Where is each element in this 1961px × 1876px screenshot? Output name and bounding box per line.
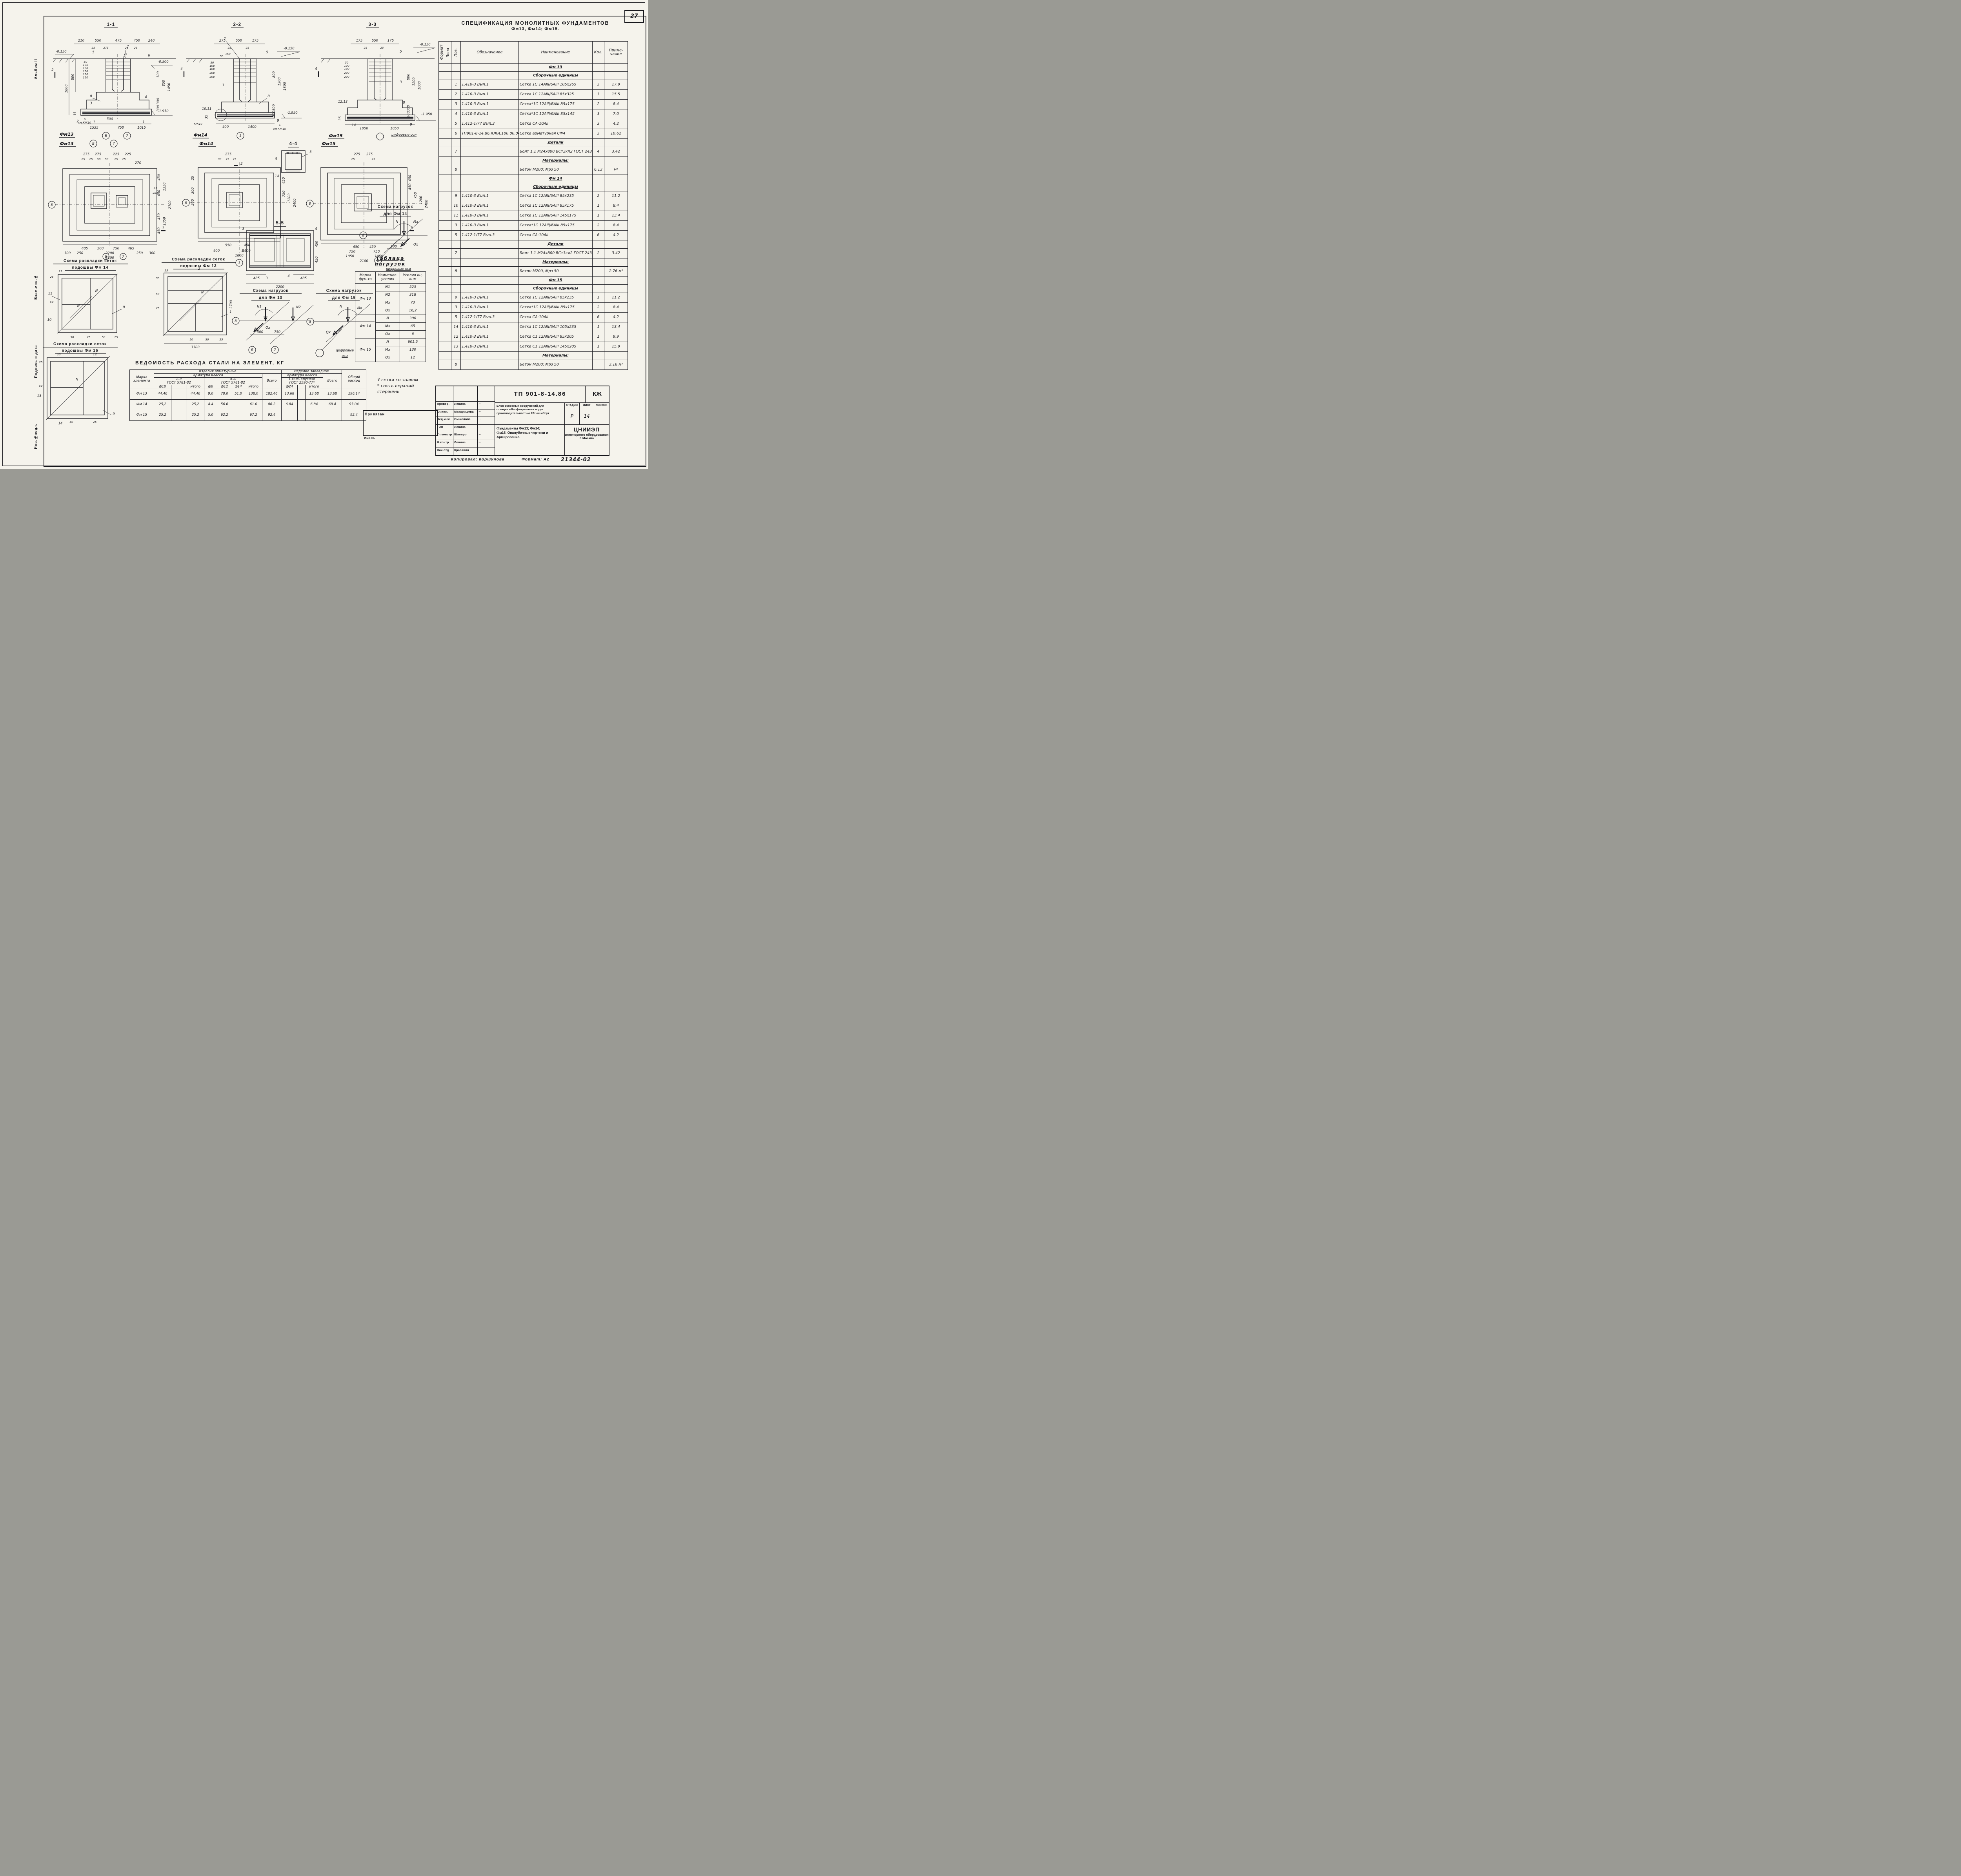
callout: 3: [266, 277, 267, 280]
spec-group-row: Сборочные единицы: [439, 183, 628, 191]
axes-note: оси: [342, 354, 348, 358]
signature-row: Ст.инж.Макарищева~: [436, 409, 495, 417]
dim-label: для Фм 13: [259, 296, 282, 300]
spec-item-row: 21.410-3 Вып.1Сетка 1С 12АIII/6АIII 85x3…: [439, 90, 628, 100]
dim-label: 25: [351, 158, 355, 161]
load-mark: Фм 13: [355, 284, 376, 315]
spec-group-row: Фм 15: [439, 277, 628, 285]
steel-mark: Фм 13: [130, 389, 154, 399]
signature-row: Вед.инжСмыслова~: [436, 417, 495, 425]
load-mark: Фм 15: [355, 338, 376, 362]
dim-label: N: [76, 378, 78, 382]
dim-label: N: [201, 291, 204, 295]
dim-label: 400: [213, 249, 220, 253]
dim-label: 1200: [278, 77, 282, 86]
dim-label: 175: [387, 39, 394, 43]
dim-label: Qx: [266, 326, 271, 330]
dim-label: 25: [156, 307, 160, 310]
dim-label: 750: [274, 330, 280, 334]
axes-note: цифровые оси: [391, 133, 417, 137]
dim-label: 500: [107, 117, 113, 121]
spec-group-row: Детали: [439, 240, 628, 249]
dim-label: 1015: [137, 126, 146, 130]
dim-label: 200: [209, 75, 215, 78]
dim-label: Схема раскладки сеток: [64, 259, 117, 263]
callout: 12: [93, 353, 97, 357]
dim-label: 275: [103, 46, 109, 49]
steel-table: Марка элемента Изделия арматурные Издели…: [129, 369, 366, 421]
dim-label: 50: [70, 420, 73, 424]
load-scheme-fm13: Схема нагрузок для Фм 13 8 N1 N2 Qx 500 …: [232, 289, 313, 353]
dim-label: 150: [83, 76, 88, 79]
dim-label: 150: [83, 73, 88, 76]
dim-label: 750: [118, 126, 124, 130]
title-block: Провер.Левина~Ст.инж.Макарищева~Вед.инжС…: [435, 386, 609, 456]
signature-row: ГИПЛевина~: [436, 425, 495, 433]
dim-label: 25: [220, 338, 223, 341]
spec-group-row: Материалы:: [439, 258, 628, 267]
loads-table: Марка фун-та Наименов. усилия Усилия кн,…: [355, 271, 426, 362]
spec-group-row: Сборочные единицы: [439, 285, 628, 293]
dim-label: 250: [77, 251, 83, 255]
callout: 12,13: [338, 100, 347, 104]
dim-label: 25: [165, 269, 168, 272]
dim-label: 2700: [229, 300, 233, 309]
spec-item-row: 11.410-3 Вып.1Сетка 1С 14АIII/6АIII 105x…: [439, 80, 628, 90]
section-1-1: 1-1 210 550 475 450 240 25 275 25 25 150…: [51, 22, 176, 139]
dim-label: 465: [128, 247, 134, 251]
callout: 3: [90, 102, 92, 106]
format-label: Формат: А2: [522, 457, 549, 462]
steel-mark: Фм 14: [130, 399, 154, 410]
spec-item-row: 41.410-3 Вып.1Сетка*1С 12АIII/6АIII 85x1…: [439, 109, 628, 119]
spec-group-row: Материалы:: [439, 157, 628, 165]
dim-label: см.КЖ10: [78, 121, 91, 124]
dim-label: 850: [162, 80, 166, 86]
dim-label: 25: [50, 275, 54, 278]
callout: 3: [400, 80, 402, 84]
dim-label: Б: [84, 118, 86, 121]
dim-label: 8: [362, 234, 364, 238]
callout: 11: [48, 292, 53, 296]
dim-label: 270: [135, 161, 141, 165]
spec-item-row: 31.410-3 Вып.1Сетка*1С 12АIII/6АIII 85x1…: [439, 303, 628, 313]
dim-label: 5-5: [276, 221, 284, 226]
spec-item-row: 51.412-1/77 Вып.3Сетка СА-10АII34.2: [439, 119, 628, 129]
dim-label: 2700: [168, 200, 172, 209]
section-title: 1-1: [107, 22, 115, 27]
dim-label: 25: [82, 158, 85, 161]
spec-group-row: Сборочные единицы: [439, 72, 628, 80]
callout: 1: [93, 120, 95, 124]
dim-label: 1050: [346, 255, 354, 258]
dim-label: 50: [190, 338, 193, 341]
dim-label: 25: [92, 46, 95, 49]
dim-label: 8: [235, 319, 237, 323]
dim-label: 500: [97, 247, 104, 251]
drawing-sheet: 27 Альбом II Взам.инв.№ Подпись и дата И…: [0, 0, 648, 469]
dim-label: 275: [366, 153, 373, 156]
callout: 7: [224, 37, 226, 41]
dim-label: 50: [97, 158, 101, 161]
dim-label: 275: [354, 153, 360, 156]
callout: 1: [142, 120, 144, 124]
steel-row: Фм 1525,225,25,062,267,292.492.4: [130, 410, 366, 420]
dim-label: 550: [236, 39, 242, 43]
dim-label: Б: [105, 134, 107, 138]
dim-label: 450: [408, 175, 412, 181]
dim-label: 150: [225, 53, 231, 56]
callout: 2: [198, 267, 200, 271]
spec-group-row: Материалы:: [439, 352, 628, 360]
dim-label: 800: [71, 74, 75, 80]
scheme-mesh-fm15: Схема раскладки сеток подошвы Фм 15 N 12…: [37, 342, 118, 426]
dim-label: -0.150: [420, 43, 430, 47]
dim-label: 450: [353, 245, 359, 249]
spec-group-row: Фм 14: [439, 175, 628, 183]
copied-by: Копировал: Коршунова: [451, 457, 504, 462]
dim-label: -0.150: [56, 50, 66, 54]
callout: 8: [403, 101, 405, 105]
cut-mark: 4: [315, 67, 317, 71]
dim-label: -1.950: [421, 113, 432, 116]
dim-label: 4-4: [289, 142, 297, 146]
dim-label: 100: [344, 64, 349, 67]
dim-label: 25: [87, 336, 91, 339]
plan-fm15: Фм15 275 275 25 25 8 450 450 750 1200 24…: [306, 141, 429, 263]
dim-label: 25: [233, 158, 236, 161]
callout: 3: [222, 84, 224, 87]
callout: 8: [90, 95, 92, 98]
dim-label: 50: [156, 277, 160, 280]
load-mark: Фм 14: [355, 315, 376, 338]
dim-label: 450: [315, 257, 319, 263]
dim-label: N: [340, 305, 342, 309]
spec-item-row: 7Болт 1.1 М24x800 ВСт3кл2 ГОСТ 24379.1-8…: [439, 249, 628, 258]
dim-label: Схема раскладки сеток: [53, 342, 107, 346]
signature-row: Провер.Левина~: [436, 402, 495, 409]
dim-label: 25: [93, 420, 97, 424]
dim-label: 7: [274, 348, 276, 352]
sheet-number: 14: [580, 409, 595, 424]
signature-row: Нач.отдКрасавин~: [436, 448, 495, 455]
dim-label: 8: [309, 320, 311, 324]
callout: 6: [148, 54, 150, 58]
dim-label: 25: [226, 158, 229, 161]
dim-label: 550: [225, 244, 231, 247]
axes-note: цифровые: [336, 349, 354, 353]
dim-label: 750: [373, 250, 380, 254]
dim-label: 300: [407, 111, 411, 118]
dim-label: 8: [309, 202, 311, 206]
dim-label: Схема нагрузок: [253, 289, 289, 293]
dim-label: для Фм 15: [332, 296, 356, 300]
callout: 4: [287, 274, 289, 278]
callout: 8: [267, 95, 270, 98]
dim-label: 175: [356, 39, 362, 43]
dim-label: 1400: [248, 125, 256, 129]
dim-label: 25: [122, 158, 126, 161]
dim-label: 200: [344, 71, 349, 75]
dim-label: 35: [73, 112, 77, 116]
dim-label: 450: [408, 184, 412, 190]
dim-label: 240: [148, 39, 155, 43]
spec-group-row: Детали: [439, 139, 628, 147]
dim-label: 300: [407, 105, 411, 111]
dim-label: 400: [222, 125, 229, 129]
callout: 5: [275, 157, 277, 161]
star-note: У сетки со знаком * снять верхний стерже…: [377, 377, 440, 395]
dim-label: 1200: [419, 196, 423, 204]
doc-mark: КЖ: [585, 386, 609, 402]
spec-item-row: 8Бетон М200; Мрз 503.16 м³: [439, 360, 628, 370]
dim-label: 25: [228, 46, 231, 49]
dim-label: 450: [134, 39, 140, 43]
scheme-mesh-fm14: 6 7 Схема раскладки сеток подошвы Фм 14 …: [47, 253, 128, 339]
foundation-mark: Фм14: [193, 133, 207, 138]
scheme-mesh-fm13: Схема раскладки сеток подошвы Фм 13 N 2 …: [156, 257, 236, 349]
dim-label: 50: [211, 61, 214, 64]
dim-label: 225: [113, 153, 119, 156]
dim-label: 50: [105, 158, 109, 161]
inv-number-label: Инв.№: [364, 436, 375, 440]
dim-label: 1400: [242, 249, 251, 253]
load-row: Фм 13N1523: [355, 284, 426, 291]
dim-label: N2: [296, 306, 301, 309]
dim-label: 25: [191, 176, 195, 180]
dim-label: 25: [134, 46, 138, 49]
dim-label: 200: [344, 75, 349, 78]
dim-label: 25: [154, 187, 157, 190]
spec-item-row: 131.410-3 Вып.1Сетка С1 12АIII/6АIII 145…: [439, 342, 628, 352]
dim-label: 175: [252, 39, 258, 43]
dim-label: 750: [113, 247, 119, 251]
dim-label: 275: [95, 153, 101, 156]
callout: 13: [37, 394, 42, 398]
dim-label: 1450: [167, 83, 171, 91]
signature-row: Н.контрЛевина~: [436, 440, 495, 448]
dim-label: 25: [115, 336, 118, 339]
foundation-mark: Фм15: [322, 141, 336, 146]
dim-label: 35: [205, 115, 209, 119]
dim-label: 1: [239, 134, 241, 138]
dim-label: 100: [209, 64, 215, 67]
spec-item-row: 31.410-3 Вып.1Сетка*1С 12АIII/6АIII 85x1…: [439, 100, 628, 109]
foundation-mark: Фм13: [60, 132, 74, 137]
dim-label: 550: [95, 39, 101, 43]
stage-value: Р: [565, 409, 580, 424]
dim-label: 475: [115, 39, 122, 43]
dim-label: 225: [125, 153, 131, 156]
dim-label: Б: [251, 348, 253, 352]
loads-title: Таблица нагрузок: [355, 256, 426, 267]
dim-label: 1535: [90, 126, 98, 130]
dim-label: 450: [157, 227, 161, 234]
dim-label: 500: [257, 330, 263, 334]
binding-box: Привязан: [363, 410, 438, 436]
foundation-mark: Фм15: [329, 133, 343, 138]
dim-label: 485: [253, 277, 260, 280]
steel-row: Фм 1344.4644.469.078.051.0138.0182.4613.…: [130, 389, 366, 399]
callout: 4: [315, 227, 317, 231]
dim-label: 450: [157, 174, 161, 180]
dim-label: 2-2: [233, 22, 241, 27]
callout: 5: [266, 51, 268, 55]
cut-mark: 2: [240, 162, 242, 166]
dim-label: 300: [156, 98, 160, 104]
dim-label: 300: [149, 251, 155, 255]
callout: 10: [47, 318, 52, 322]
steel-mark: Фм 15: [130, 410, 154, 420]
dim-label: 1800: [65, 84, 69, 93]
dim-label: 300: [64, 251, 71, 255]
callout: 14: [275, 175, 279, 178]
dim-label: Qx: [326, 331, 331, 335]
dim-label: 100: [83, 64, 88, 67]
section-2-2: 2-2 275 550 175 25 25 -0.150 150 50 50 1…: [180, 22, 302, 139]
callout: 9: [123, 306, 125, 309]
cut-mark: 4: [180, 67, 182, 71]
dim-label: 35: [338, 116, 342, 121]
dim-label: подошвы Фм 14: [72, 266, 108, 270]
dim-label: 500: [156, 71, 160, 78]
plan-fm13: Б 7 Фм13 275 275 225 225 25 25 50 50 25 …: [48, 140, 172, 260]
dim-label: 225: [153, 191, 158, 195]
spec-item-row: 6ТП901-8-14.86.КЖИ.100.00.04Сетка армату…: [439, 129, 628, 139]
dim-label: 25: [380, 46, 384, 49]
load-row: Фм 14N300: [355, 315, 426, 323]
spec-item-row: 8Бетон М200, Мрз 502.76 м³: [439, 267, 628, 277]
organization: ЦНИИЭП инженерного оборудования г. Москв…: [565, 425, 609, 455]
dim-label: N: [396, 220, 398, 224]
dim-label: N1: [257, 305, 262, 309]
dim-label: 800: [407, 74, 411, 80]
dim-label: 750: [414, 192, 418, 198]
dim-label: 1350: [163, 217, 167, 226]
spec-item-row: 7Болт 1.1 М24x800 ВСт3кп2 ГОСТ 24379.1-8…: [439, 147, 628, 157]
doc-code: ТП 901-8-14.86: [495, 386, 585, 402]
dim-label: 100: [83, 67, 88, 70]
foundation-mark: Фм14: [199, 141, 213, 146]
dim-label: Б: [92, 142, 95, 146]
dim-label: КЖ10: [194, 122, 202, 126]
dim-label: 300: [272, 111, 276, 117]
sheet-name: Фундаменты Фм13; Фм14; Фм15. Опалубочные…: [495, 425, 565, 455]
dim-label: 25: [89, 158, 93, 161]
dim-label: см.КЖ10: [273, 127, 286, 131]
spec-item-row: 31.410-3 Вып.1Сетка*1С 12АIII/6АIII 85x1…: [439, 221, 628, 231]
dim-label: 450: [282, 177, 286, 184]
callout: 3: [242, 227, 244, 231]
project-name: Блок основных сооружений для станции обе…: [495, 403, 565, 424]
callout: 5: [92, 51, 94, 55]
dim-label: -1.950: [287, 111, 297, 115]
cut-mark: 5: [51, 68, 53, 72]
dim-label: 25: [364, 46, 367, 49]
dim-label: 300: [191, 187, 195, 194]
dim-label: 1350: [163, 182, 167, 191]
dim-label: 25: [57, 353, 61, 356]
section-3-3: 3-3 175 550 175 25 25 -0.150 50 100 100 …: [315, 22, 436, 140]
spec-title: СПЕЦИФИКАЦИЯ МОНОЛИТНЫХ ФУНДАМЕНТОВ Фм13…: [443, 20, 628, 31]
dim-label: 1800: [283, 82, 287, 91]
dim-label: 1200: [287, 193, 291, 202]
dim-label: -0.150: [284, 47, 294, 51]
dim-label: 50: [50, 300, 54, 304]
spec-item-row: 121.410-3 Вып.1Сетка С1 12АIII/6АIII 85x…: [439, 332, 628, 342]
dim-label: 8: [51, 203, 53, 207]
dim-label: 450: [244, 244, 250, 247]
signature-row: Гл.констрШапиро~: [436, 432, 495, 440]
callout: 1: [229, 310, 231, 314]
dim-label: 200: [191, 199, 195, 206]
steel-title: ВЕДОМОСТЬ РАСХОДА СТАЛИ НА ЭЛЕМЕНТ, КГ: [135, 360, 284, 366]
foundation-mark: Фм13: [60, 141, 74, 146]
dim-label: 275: [83, 153, 89, 156]
dim-label: 2400: [293, 198, 297, 207]
dim-label: 1800: [418, 81, 422, 90]
plan-fm14: Фм14 275 90 25 25 8 25 300 200 450 750 1…: [182, 141, 297, 266]
dim-label: 1800: [235, 254, 244, 258]
spec-table: Формат Зона Поз. Обозначение Наименовани…: [438, 41, 628, 370]
dim-label: 25: [115, 158, 118, 161]
dim-label: 8: [185, 201, 187, 205]
dim-label: 7: [122, 255, 124, 259]
callout: 10,11: [202, 107, 211, 111]
dim-label: 25: [372, 158, 375, 161]
dim-label: 750: [282, 191, 286, 197]
title-block-signatures: Провер.Левина~Ст.инж.Макарищева~Вед.инжС…: [436, 386, 495, 455]
dim-label: 3-3: [368, 22, 377, 27]
dim-label: Схема раскладки сеток: [172, 257, 225, 262]
dim-label: Qx: [413, 243, 418, 247]
dim-label: 485: [82, 247, 88, 251]
dim-label: Схема нагрузок: [378, 205, 413, 209]
cut-mark: 1: [162, 226, 164, 230]
spec-item-row: 141.410-3 Вып.1Сетка 1С 12АIII/6АIII 105…: [439, 322, 628, 332]
load-row: Фм 15N601.5: [355, 338, 426, 346]
sheets-total: [594, 409, 609, 424]
dim-label: 50: [345, 61, 349, 64]
dim-label: 150: [123, 52, 128, 58]
spec-item-row: 91.410-3 Вып.1Сетка 1С 12АIII/6АIII 85x2…: [439, 293, 628, 303]
spec-group-row: Фм 13: [439, 64, 628, 72]
dim-label: N: [77, 304, 80, 308]
dim-label: 50: [39, 384, 43, 388]
dim-label: 50: [220, 55, 224, 58]
spec-item-row: 111.410-3 Вып.1Сетка 1С 12АIII/6АIII 145…: [439, 211, 628, 221]
spec-item-row: 91.410-3 Вып.1Сетка 1С 12АIII/6АIII 85x2…: [439, 191, 628, 201]
dim-label: А: [278, 124, 281, 127]
callout: 9: [277, 119, 279, 123]
callout: 3: [309, 150, 311, 154]
dim-label: 450: [157, 213, 161, 220]
dim-label: 800: [272, 71, 276, 78]
callout: 4: [145, 95, 147, 99]
dim-label: 25: [246, 46, 249, 49]
dim-label: 50: [206, 338, 209, 341]
dim-label: -0.500: [158, 60, 168, 64]
callout: 14: [58, 422, 63, 426]
dim-label: 550: [372, 39, 378, 43]
dim-label: 1050: [360, 127, 368, 131]
dim-label: 1200: [412, 77, 416, 86]
steel-row: Фм 1425,225,24.456.661.086.26.846.8468.4…: [130, 399, 366, 410]
dim-label: 750: [349, 250, 355, 254]
dim-label: 7: [126, 134, 128, 138]
dim-label: 100: [209, 67, 215, 71]
dim-label: Mx: [413, 220, 418, 224]
